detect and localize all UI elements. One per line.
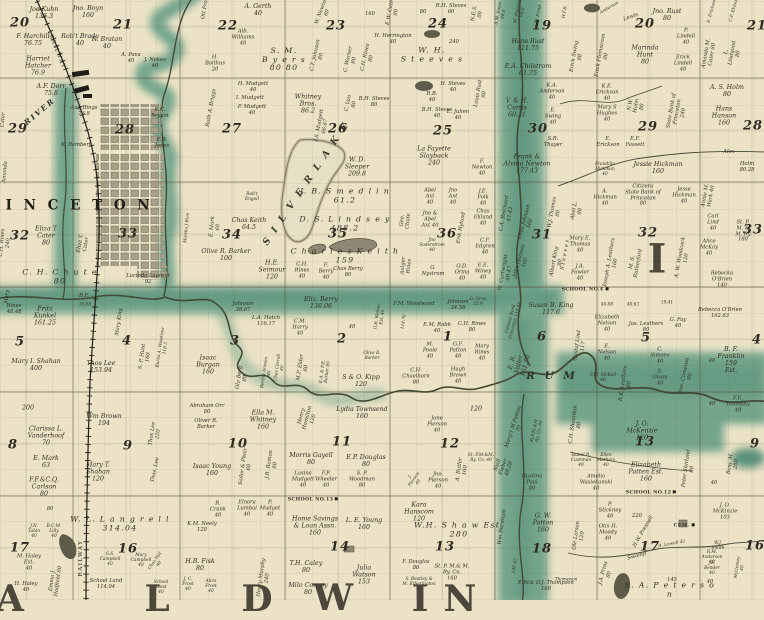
parcel-label: G.S. Campbell 40 <box>100 553 121 567</box>
parcel-label: Abraham Orr 80 <box>190 404 225 416</box>
section-number: 22 <box>218 20 238 35</box>
parcel-label: H.W. Presnell <box>633 515 656 549</box>
parcel-label: Erik Hylund <box>456 212 467 244</box>
parcel-label: Chas Berry 80 <box>333 267 363 279</box>
lake-label-silver-lake: S I L V E R L A K E <box>261 120 352 248</box>
parcel-label: G. W. Patton 160 <box>533 512 554 533</box>
parcel-label: Gustina Paul 80 <box>522 474 542 491</box>
parcel-label: Mary S Hughes 40 <box>597 105 617 122</box>
parcel-label: R.M. Anderson 40 <box>702 551 723 565</box>
parcel-label: A. W. Woodcock 120 <box>675 237 694 280</box>
parcel-label: E. Swing 40 <box>545 108 561 125</box>
parcel-label: 80 <box>420 10 427 16</box>
parcel-label: H. Herrington 40 <box>374 34 411 46</box>
parcel-label: W. Newton 60 <box>315 0 336 27</box>
section-number: 28 <box>115 124 135 139</box>
parcel-label: Susan B. King 117.6 <box>529 302 574 316</box>
section-number: 36 <box>437 228 457 243</box>
parcel-label: E.M. Robb 40 <box>423 323 451 335</box>
parcel-label: C.H. Rines 80 <box>458 322 486 334</box>
township-big-letter: W <box>313 578 353 618</box>
section-number: 35 <box>328 228 348 243</box>
parcel-label: 160 <box>365 12 375 18</box>
section-number: 31 <box>532 229 552 244</box>
parcel-label: H. Haley 40 <box>14 582 37 594</box>
parcel-label: Burns A. Woodrow 118.3 <box>156 327 171 368</box>
section-number: 17 <box>640 541 660 556</box>
section-number: 4 <box>122 335 132 350</box>
parcel-label: H. Bolthus 20 <box>205 55 225 72</box>
parcel-label: C. Warner 80 <box>344 46 361 74</box>
parcel-label: A. Butler 160 <box>456 458 471 483</box>
parcel-label: Ole Larson 120 <box>572 521 588 551</box>
parcel-label: E.A. & F.E. Barber 80 <box>320 360 333 385</box>
parcel-label: A. Gerth 40 <box>245 3 272 17</box>
parcel-label: H. Mudgett 40 <box>238 82 268 94</box>
parcel-label: Erick Flemstrom 80 <box>594 33 613 78</box>
parcel-label: N.W. Holm 80 <box>627 97 647 114</box>
parcel-label: J.E. Bender 40 <box>704 562 720 576</box>
parcel-label: Jno. Rust 80 <box>653 8 682 22</box>
section-number: 30 <box>528 123 548 138</box>
parcel-label: Elnora Lumbal 40 <box>237 500 257 517</box>
parcel-label: Frandilla Hickman 40 <box>595 163 615 177</box>
parcel-label: F.M. McKell 40 <box>590 374 616 384</box>
parcel-label: W. D. Sleeper 209.8 <box>345 156 370 177</box>
parcel-label: 114.76 <box>402 314 409 330</box>
section-number: 14 <box>330 541 350 556</box>
parcel-label: Chas Carroll 40 <box>274 354 287 383</box>
parcel-label: Kara Hanscom 120 <box>404 501 434 522</box>
parcel-label: G. Fay 40 <box>670 318 687 330</box>
parcel-label: Citizens State Bank of Princeton 80 <box>625 184 661 207</box>
parcel-label: E.W. Cater 80 <box>386 0 402 27</box>
parcel-label: St. P.M.&M. Ry. Co. 40 <box>468 454 494 464</box>
parcel-label: I.S. Mudgett 66.67 <box>314 109 331 143</box>
parcel-label: L. E. Young 160 <box>346 517 382 531</box>
section-number: 20 <box>635 18 655 33</box>
parcel-label: J. Pierson 40 <box>404 469 425 491</box>
section-number: 17 <box>10 542 30 557</box>
section-number: 3 <box>230 335 240 350</box>
parcel-label: W.J. Thomas 80 <box>548 196 565 229</box>
parcel-label: State Bank of Princeton 240 <box>666 93 689 131</box>
parcel-label: Rob't Brady 40 <box>61 33 99 47</box>
parcel-label: B.F. <box>79 294 89 300</box>
township-big-letter: I <box>412 579 429 619</box>
parcel-label: Jane Pierson 40 <box>427 416 447 433</box>
parcel-label: Isaac Burgan 160 <box>196 354 220 375</box>
town-label-princeton: P R I N C E T O N <box>0 198 153 213</box>
section-number: 18 <box>532 543 552 558</box>
parcel-label: J.A. Fowler 40 <box>571 264 589 281</box>
parcel-label: Lucinda Laurent 92 <box>126 274 170 286</box>
section-number: 13 <box>635 436 655 451</box>
parcel-label: Jas. Leathers 80 <box>629 322 663 334</box>
parcel-label: C.H. Rines 40 <box>295 262 310 279</box>
parcel-label: 40.88 <box>601 304 613 309</box>
parcel-label: E. Nelson 40 <box>598 344 616 361</box>
railway-label-south: RAILWAY <box>78 540 84 577</box>
parcel-label: F.E. Donnelly 40 <box>726 396 749 413</box>
parcel-label: Jno. Pierson 40 <box>428 472 448 489</box>
parcel-label: F.F.&C.Q. Carlson 80 <box>29 476 59 497</box>
parcel-label: Home Savings & Loan Assn. 160 <box>292 515 338 536</box>
parcel-label: Sailor & Phair 60 <box>239 448 256 487</box>
parcel-label: M. Plaisted 66.8 <box>514 0 528 25</box>
parcel-label: Hugh Brown 40 <box>449 367 466 384</box>
parcel-label: Lewis <box>623 13 639 24</box>
section-number: 6 <box>537 331 547 346</box>
parcel-label: Wm Burnham <box>498 509 509 546</box>
section-number: 20 <box>10 17 30 32</box>
parcel-label: Olive R. Barker 100 <box>201 248 250 262</box>
parcel-label: A.M. Jones 66.8 <box>495 2 509 27</box>
section-number: 29 <box>638 121 658 136</box>
parcel-label: F. Douglas 80 <box>402 560 429 572</box>
parcel-label: B.H. Steves 80 <box>359 97 390 109</box>
parcel-label: 40 <box>349 325 356 331</box>
parcel-label: J. Nokes 40 <box>144 58 166 70</box>
parcel-label: N.E.S. 80 <box>471 5 485 23</box>
parcel-label: W.J. Smith <box>712 542 725 552</box>
parcel-label: 40 <box>709 359 716 365</box>
parcel-label: Thos Lee 220 <box>149 421 164 446</box>
parcel-label: Chas Johnson 160 <box>518 204 538 242</box>
parcel-label: F.M. Woodward <box>394 302 435 308</box>
parcel-label: K.A. Anderson 40 <box>539 83 564 100</box>
parcel-label: Gustaf Lind 117 <box>573 330 589 362</box>
parcel-label: Hans Rust 111.75 <box>511 38 544 52</box>
parcel-label: 19.41 <box>661 302 673 307</box>
parcel-label: Swamp <box>627 552 647 563</box>
parcel-label: Joe Kuhn 136.3 <box>30 6 59 20</box>
parcel-label: 140.42 <box>513 558 520 574</box>
parcel-label: M.P. Elder 60 <box>296 354 311 382</box>
parcel-label: Mary Campbell 40 <box>131 554 152 568</box>
parcel-label: Ruth A. Briggs <box>206 88 218 127</box>
parcel-label: E.A. Chilstrom 61.75 <box>505 63 552 77</box>
parcel-label: P. Mudget 40 <box>260 500 280 517</box>
parcel-label: Rebecca O'Brien 162.63 <box>698 308 742 320</box>
parcel-label: 40 <box>711 481 718 487</box>
river-label-rum: R U M <box>526 371 578 383</box>
section-number: 21 <box>113 19 133 34</box>
parcel-label: Morris Gayell 80 <box>289 452 333 466</box>
parcel-label: A.F. Dorr 75.8 <box>37 83 66 97</box>
parcel-label: C.H. Rines 240 <box>0 229 13 258</box>
parcel-label: S. P. Woodman 80 <box>349 471 375 488</box>
parcel-label: Jno. Boyn 160 <box>73 5 103 19</box>
parcel-label: Aulger Rines <box>400 257 413 276</box>
parcel-label: Erick Swing 80 <box>570 40 587 73</box>
parcel-label: M. Poole 40 <box>423 342 437 359</box>
parcel-label: Jesse Hickman 40 <box>672 187 696 204</box>
parcel-label: School Land 40 <box>154 581 169 595</box>
parcel-label: T.H. Caley 80 <box>290 560 323 574</box>
parcel-label: Holm 80.28 <box>740 162 755 174</box>
parcel-label: Harriet Hatcher 76.9 <box>25 55 51 76</box>
parcel-label: E. Mark 63 <box>33 455 59 469</box>
parcel-label: Elizabeth Nelson 40 <box>595 315 620 332</box>
parcel-label: I. Mudgett <box>236 96 264 102</box>
parcel-label: M. S. Rutherford <box>628 248 644 279</box>
section-number: 26 <box>328 123 348 138</box>
parcel-label: C.T. Johnson 80 <box>310 39 328 73</box>
parcel-label: Mary E. Thomas 40 <box>570 236 591 253</box>
parcel-label: 40 <box>709 402 716 408</box>
parcel-label: Ellen Mathers 40 <box>597 454 615 468</box>
parcel-label: B. F. Franklin 159 Est. <box>715 346 748 374</box>
parcel-label: St.P.M.&M. Ry. Co. 60 <box>531 418 546 444</box>
parcel-label: E. Mark 60 <box>209 216 222 238</box>
parcel-label: Bertha Arnson 40 <box>261 357 275 390</box>
parcel-label: Marinda Hunt 80 <box>631 44 658 65</box>
parcel-label: S t e e v e s <box>561 240 572 271</box>
parcel-label: E.P. Douglas 80 <box>346 454 386 468</box>
parcel-label: Alice Frost 40 <box>205 580 217 594</box>
parcel-label: Louis Rust 60 <box>474 79 490 108</box>
parcel-label: J.N. Tobin 40 <box>28 525 40 539</box>
parcel-label: C. H. C h u t e 80 <box>22 268 98 285</box>
parcel-label: McGinney 40 <box>735 556 748 579</box>
parcel-label: Whitney Bros. 86.2 <box>295 93 321 114</box>
section-number: 23 <box>326 20 346 35</box>
parcel-label: V. & H. Curtis 60.31 <box>506 97 529 118</box>
parcel-label: H.F.B. <box>562 5 569 19</box>
parcel-label: J. C. Frost 40 <box>182 578 194 592</box>
river-label-west-branch: RIVER <box>23 97 57 128</box>
parcel-label: Mary I. Shahan 400 <box>11 358 60 372</box>
section-number: 1 <box>443 331 453 346</box>
parcel-label: Fritz Kunkel 161.25 <box>34 305 56 326</box>
parcel-label: 200 <box>22 404 34 411</box>
parcel-label: K.M. Neely 120 <box>187 522 216 534</box>
parcel-label: Geo. Chute <box>400 213 413 230</box>
parcel-label: SCHOOL NO.13 <box>288 497 338 502</box>
parcel-label: Mary T. Shahan 120 <box>86 461 110 482</box>
parcel-label: J.B. Ramon 60 <box>265 450 281 480</box>
parcel-label: G.F. Patton 40 <box>450 342 467 359</box>
parcel-label: Oliver R. Barker <box>194 419 217 431</box>
parcel-label: B.H. Steves 40 <box>422 108 453 120</box>
section-number: 33 <box>743 224 763 239</box>
parcel-label: O.D. Orina 40 <box>455 264 470 281</box>
section-number: 21 <box>747 20 764 35</box>
parcel-label: Amelia Wasiekanski 40 <box>580 474 612 491</box>
parcel-label: M. Haley Est. 40 <box>17 554 41 571</box>
parcel-label: R.K. Leathers 80 <box>619 365 636 402</box>
section-number: 19 <box>532 20 552 35</box>
parcel-label: Eliza T Cater 80 <box>35 225 57 246</box>
section-number: 11 <box>332 436 352 451</box>
parcel-label: W.H. S h a w Est. 280 <box>414 521 504 538</box>
parcel-label: S & O. Kipp 120 <box>342 374 380 388</box>
section-number: 25 <box>433 125 453 140</box>
parcel-label: A. Lowell 42 <box>658 540 686 549</box>
parcel-label: Ott Prott <box>201 0 211 20</box>
parcel-label: Carl Lind 40 <box>707 214 719 231</box>
parcel-label: Julia Watson 153 <box>352 564 375 585</box>
parcel-label: R.B. 40 <box>426 92 437 104</box>
parcel-label: D. S. L i n d s e y 488.2 <box>299 215 390 232</box>
parcel-label: La Fayette Slayback 240 <box>417 145 451 166</box>
parcel-label: H.B. Fisk 80 <box>185 558 215 572</box>
section-number: 9 <box>123 440 133 455</box>
parcel-label: K.E. Erickson 40 <box>595 84 618 101</box>
parcel-label: F. Berry 40 <box>319 263 334 280</box>
parcel-label: F. Newton 40 <box>472 159 493 176</box>
parcel-label: Joseph A. Leathers 160 <box>603 238 623 289</box>
parcel-label: W. Cartwright 40.47 <box>498 254 516 292</box>
parcel-label: R. Bratan 40 <box>92 36 122 50</box>
section-number: 24 <box>428 18 448 33</box>
parcel-label: Annie M. Wark 40 <box>701 183 717 208</box>
parcel-label: Lusina Mudgett 40 <box>292 471 315 488</box>
parcel-label: Jno Soderstrom 40 <box>419 239 445 253</box>
parcel-label: C.H. Chaelborn 80 <box>402 368 429 385</box>
parcel-label: School Land 114.04 <box>90 579 123 591</box>
parcel-label: Mary King <box>115 308 125 336</box>
parcel-label: Eliz. Berry 136.06 <box>304 296 338 310</box>
parcel-label: 40 <box>707 580 714 586</box>
parcel-label: Amanda <box>2 161 10 183</box>
parcel-label: A. Hickman 40 <box>593 189 617 206</box>
parcel-label: 240 <box>449 40 459 46</box>
parcel-label: Mary Rines 40 <box>475 344 490 361</box>
parcel-label: Aug Rings 76.8 <box>71 106 98 118</box>
parcel-label: L. Lindquist 80 <box>722 36 745 70</box>
parcel-label: Abel L. 80 <box>571 201 586 221</box>
section-number: 5 <box>641 332 651 347</box>
parcel-label: Clarissa L. Vanderhoof 70 <box>28 425 65 446</box>
parcel-label: S. M. B y e r s 80 80 <box>262 47 306 73</box>
section-number: 33 <box>118 228 138 243</box>
section-number: 4 <box>752 334 762 349</box>
parcel-label: G. Nystrom <box>422 266 445 278</box>
parcel-label: Chas Eklund 40 <box>474 209 493 226</box>
section-number: 2 <box>337 333 347 348</box>
parcel-label: St. P. M.& M. Ry. Co. 160 <box>435 564 470 581</box>
map-labels-layer: Joe Kuhn 136.3Jno. Boyn 160F. Harchill 7… <box>0 0 764 600</box>
parcel-label: Jno & Abel Axt 40 <box>421 211 438 228</box>
section-number: 32 <box>638 227 658 242</box>
parcel-label: CEM. <box>674 523 695 528</box>
parcel-label: Elizabeth Patten Est. 160 <box>629 461 664 482</box>
parcel-label: G.B. Walker Est. 40 <box>374 304 387 331</box>
parcel-label: Rebecka O'Brien 140 <box>701 271 743 288</box>
parcel-label: E.F. Fassett <box>626 137 645 149</box>
parcel-label: Albert King 80 <box>550 246 567 278</box>
parcel-label: St. P. M. & M. Ry 180 <box>733 220 754 243</box>
parcel-label: J. Prout <box>536 5 544 22</box>
parcel-label: C.H. Rines 80 <box>360 43 377 73</box>
parcel-label: Lydia Townsend 160 <box>336 406 387 420</box>
section-number: 29 <box>8 123 28 138</box>
parcel-label: Alice McKay 40 <box>700 239 718 256</box>
parcel-label: Neill Fisher 48.28 <box>493 456 515 477</box>
parcel-label: C.H. Sheardan 80 <box>569 405 586 445</box>
parcel-label: Emma J. Hadfield 80 <box>48 565 64 597</box>
parcel-label: Chas Vail 40 <box>148 552 167 574</box>
parcel-label: Otis H. Moody 40 <box>599 524 617 541</box>
parcel-label: Johnson 38.67 <box>232 302 253 314</box>
parcel-label: 40.63 <box>627 304 639 309</box>
parcel-label: 145 <box>667 578 677 584</box>
parcel-label: E. Erickson <box>707 0 718 24</box>
parcel-label: Milo Conroy 80 <box>288 582 327 596</box>
parcel-label: Frank & Alvina Newton 177.43 <box>504 153 551 174</box>
parcel-label: Peter Shirland 80 <box>682 449 699 488</box>
township-big-letter: A <box>0 579 24 619</box>
township-big-letter: D <box>241 579 272 619</box>
parcel-label: G. Orno 35.9 <box>470 298 487 308</box>
parcel-label: E.B. Jones <box>155 138 169 150</box>
parcel-label: P. Mudgett 40 <box>238 105 266 117</box>
section-number: 12 <box>440 438 460 453</box>
parcel-label: Ola Berg 80 <box>236 366 251 391</box>
parcel-label: C.F. Eklund <box>729 0 740 23</box>
section-number: 16 <box>118 543 138 558</box>
township-big-letter: I <box>648 238 667 283</box>
parcel-label: Anderson <box>600 2 620 17</box>
parcel-label: S.R. Thayer <box>544 137 562 149</box>
parcel-label: C. Simons 40 <box>650 347 669 364</box>
section-number: 16 <box>745 540 764 555</box>
parcel-label: Chas Keith 64.5 <box>232 217 267 231</box>
parcel-label: J. O. McKenzie 120 <box>626 420 657 441</box>
parcel-label: H.E. Seimour 120 <box>259 259 286 280</box>
parcel-label: Olive R. Barber <box>363 352 380 362</box>
parcel-label: S. A. P e t e r s o n <box>623 581 717 598</box>
section-number: 9 <box>750 438 760 453</box>
parcel-label: B.C.M. Lilly 40 <box>47 525 62 539</box>
parcel-label: K. Rembert <box>61 143 91 149</box>
parcel-label: L.A. Hatch 116.17 <box>252 316 280 328</box>
section-number: 34 <box>222 229 242 244</box>
township-big-letter: L <box>144 579 169 619</box>
section-number: 28 <box>743 120 763 135</box>
parcel-label: Johnson 34.58 <box>447 300 468 312</box>
parcel-label: John Holmes 160 <box>513 244 533 279</box>
parcel-label: E. R. Valler 161.58 <box>506 351 532 378</box>
parcel-label: A. Pava 40 <box>121 53 140 65</box>
parcel-label: J.E. Folk 40 <box>477 189 488 206</box>
parcel-label: E.W.& O.J. Thompson 160 <box>518 581 574 593</box>
parcel-label: C.M. Harry 40 <box>292 319 308 336</box>
parcel-label: E.E. Winey 40 <box>475 263 491 280</box>
parcel-label: R.H. Steves 60 <box>436 4 467 16</box>
parcel-label: F. Harchill 76.75 <box>16 33 49 47</box>
township-big-letter: N <box>444 579 477 619</box>
parcel-label: Erick Lindell 40 <box>674 55 692 72</box>
parcel-label: Thompson <box>555 579 578 584</box>
parcel-label: Citizens Bank Princeton 119.48 <box>504 301 523 340</box>
parcel-label: H. Steves 40 <box>440 82 465 94</box>
parcel-label: Henry Hamilton 120 <box>296 404 319 432</box>
parcel-label: Benj. M. 280 <box>727 452 742 475</box>
parcel-label: Jno Axt 40 <box>449 188 458 205</box>
parcel-label: Amanda M. Cater 80 <box>702 38 719 70</box>
section-number: 5 <box>15 336 25 351</box>
parcel-label: P. Lindell 40 <box>677 28 695 45</box>
parcel-label: Rob't Engell <box>245 193 259 203</box>
parcel-label: SCHOOL NO.12 <box>626 490 676 495</box>
parcel-label: C h a r l e s K e i t h 159 <box>291 247 400 264</box>
parcel-label: E.C. Bryant <box>151 108 169 120</box>
section-number: 32 <box>10 230 30 245</box>
parcel-label: S. P. Hunt 160 <box>138 343 153 370</box>
